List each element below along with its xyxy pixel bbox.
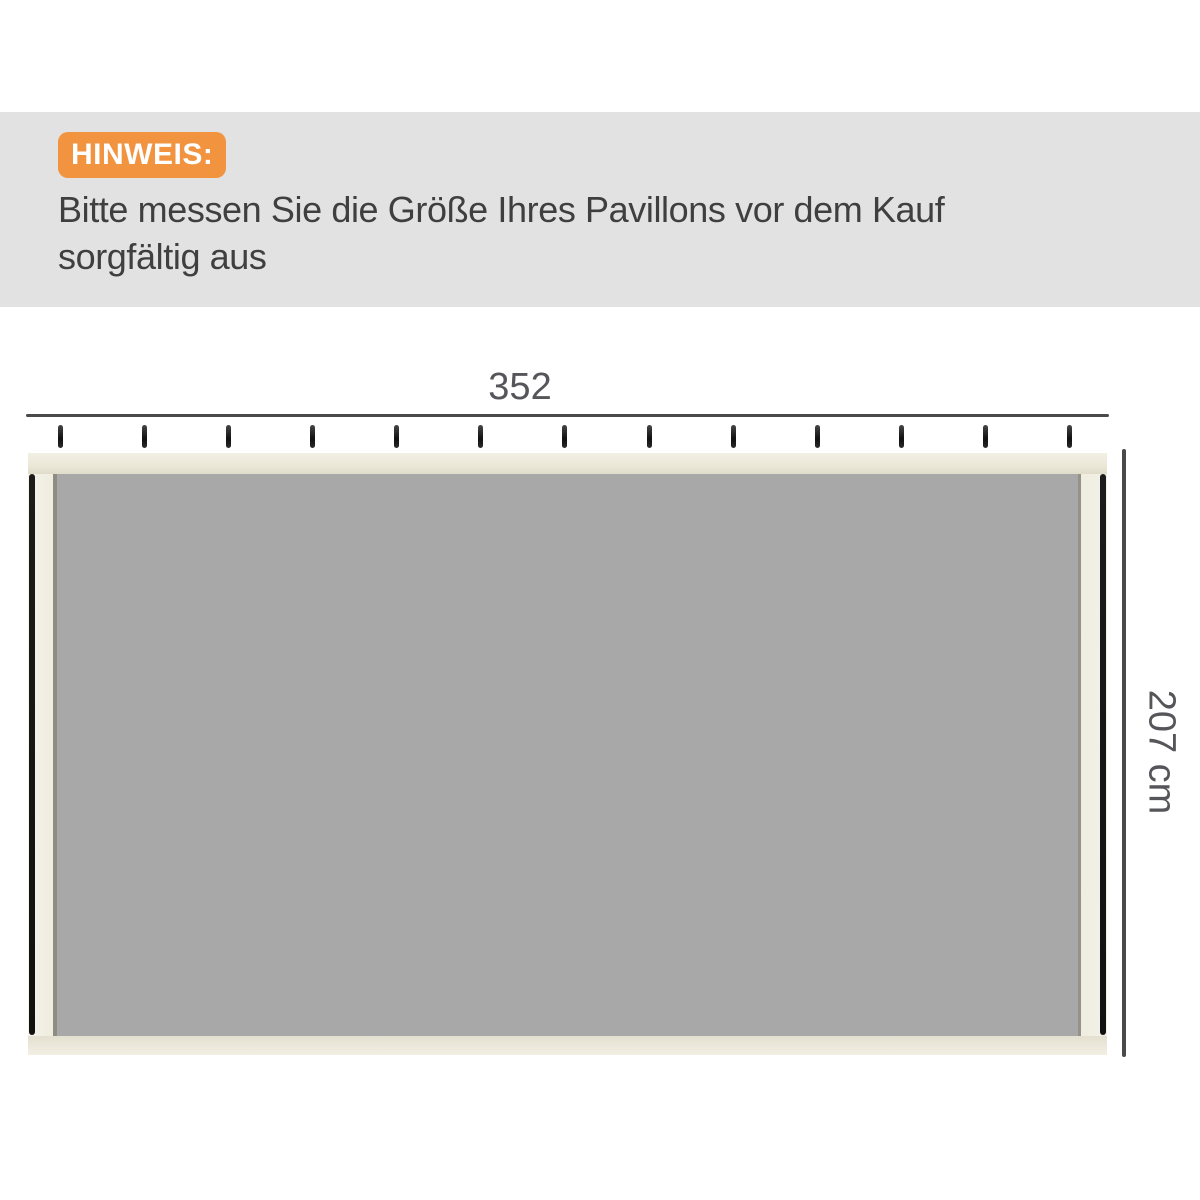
height-dimension-line <box>1122 449 1126 1057</box>
curtain-hook-icon <box>899 425 904 448</box>
curtain-hook-icon <box>647 425 652 448</box>
width-dimension-label: 352 <box>488 366 551 409</box>
curtain-hook-icon <box>226 425 231 448</box>
notice-text-line1: Bitte messen Sie die Größe Ihres Pavillo… <box>58 186 944 233</box>
curtain-hook-icon <box>815 425 820 448</box>
panel-left-edge-strip <box>29 474 35 1035</box>
curtain-panel <box>28 453 1107 1055</box>
hooks-row <box>58 425 1072 448</box>
curtain-hook-icon <box>562 425 567 448</box>
curtain-hook-icon <box>983 425 988 448</box>
notice-badge: HINWEIS: <box>58 132 226 178</box>
curtain-hook-icon <box>1067 425 1072 448</box>
panel-gray-fabric <box>53 474 1081 1036</box>
height-dimension-label: 207 cm <box>1140 690 1183 815</box>
notice-text: Bitte messen Sie die Größe Ihres Pavillo… <box>58 186 944 280</box>
curtain-hook-icon <box>58 425 63 448</box>
width-dimension-line <box>26 414 1109 417</box>
curtain-hook-icon <box>310 425 315 448</box>
panel-bottom-trim <box>28 1036 1107 1055</box>
curtain-hook-icon <box>478 425 483 448</box>
notice-text-line2: sorgfältig aus <box>58 233 944 280</box>
curtain-hook-icon <box>142 425 147 448</box>
curtain-hook-icon <box>394 425 399 448</box>
notice-banner: HINWEIS: Bitte messen Sie die Größe Ihre… <box>0 112 1200 307</box>
panel-top-trim <box>28 453 1107 474</box>
panel-body <box>28 474 1107 1036</box>
product-dimension-page: HINWEIS: Bitte messen Sie die Größe Ihre… <box>0 0 1200 1200</box>
panel-right-edge-strip <box>1100 474 1106 1035</box>
curtain-hook-icon <box>731 425 736 448</box>
